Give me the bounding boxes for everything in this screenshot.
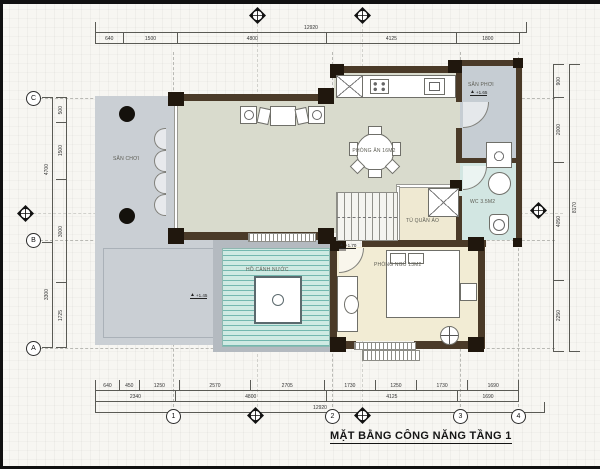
dim-segment: 2570 [179,380,250,391]
dim-value: 12920 [313,406,327,412]
bedroom-window [354,342,416,350]
living-window [248,233,316,242]
grid-bubble-2: 2 [325,409,340,424]
dim-chain-bottom-2: 2340480041251690 [95,391,519,401]
dim-segment: 4125 [326,391,457,402]
dim-value: 1730 [344,384,355,390]
dim-segment: 1800 [456,33,520,44]
wall-bedroom-left [330,247,337,341]
desk-chair [344,295,359,314]
wall-right [516,60,522,245]
dim-value: 2000 [557,124,562,135]
dim-value: 1500 [59,145,64,156]
column [513,58,523,68]
dim-value: 500 [59,106,64,114]
column [330,337,346,352]
dim-value: 4125 [386,395,397,401]
dim-segment: 2340 [95,391,175,402]
dim-value: 450 [125,384,133,390]
dim-segment: 1500 [56,122,67,180]
axis-marker-icon [354,407,371,424]
dim-segment: 1730 [416,380,468,391]
dim-segment: 2250 [553,280,564,352]
dim-segment: 2000 [553,97,564,162]
column [168,228,184,244]
dim-value: 1500 [145,37,156,43]
furniture-tv-unit [270,106,296,126]
dim-value: 4050 [557,216,562,227]
dim-value: 2705 [282,384,293,390]
dim-segment: 8170 [569,64,580,352]
dim-segment: 4125 [326,33,456,44]
dim-value: 1800 [482,37,493,43]
room-label-pond: HỒ CẢNH NƯỚC [246,267,289,273]
sink-icon [424,78,445,95]
dim-value: 4125 [386,37,397,43]
grid-bubble-4: 4 [511,409,526,424]
level-triangle-icon: ▲ [339,243,344,248]
dim-chain-bottom-1: 6404501250257027051730125017301690 [95,380,519,390]
dim-segment: 3000 [56,179,67,282]
dim-segment: 1725 [56,282,67,348]
dim-value: 640 [105,37,113,43]
dim-value: 1730 [437,384,448,390]
drawing-title: MẶT BẰNG CÔNG NĂNG TẦNG 1 [330,430,512,444]
dim-segment: 640 [95,380,119,391]
room-label-wc: WC 3.5M2 [470,199,495,205]
fan-symbol-icon [440,326,459,345]
grid-bubble-a: A [26,341,41,356]
toilet-icon [489,214,509,235]
dim-chain-top: 6401500480041251800 [95,33,520,43]
axis-marker-icon [17,205,34,222]
room-label-wardrobe: TỦ QUẦN ÁO [406,218,439,224]
dim-value: 1690 [482,395,493,401]
dining-chair [368,126,382,135]
level-triangle-icon: ▲ [190,293,195,298]
grid-bubble-c: C [26,91,41,106]
elevation-value: +1.45 [196,294,207,299]
fountain-drain-icon [272,294,284,306]
dim-value: 4700 [45,164,50,175]
dim-value: 3300 [45,289,50,300]
dim-segment: 12920 [95,22,527,33]
elevation-marker: ▲+1.45 [190,293,207,299]
axis-marker-icon [530,202,547,219]
page-border-top [0,0,600,4]
wall-kitchen-top [330,66,462,73]
column [448,60,462,73]
wall-living-top [172,94,334,101]
dim-segment: 1250 [375,380,416,391]
dim-segment: 1500 [123,33,178,44]
room-label-playground: SÂN CHƠI [113,156,139,162]
dim-segment: 1690 [457,391,519,402]
dim-value: 4800 [247,37,258,43]
tree-icon [119,106,135,122]
dim-value: 12920 [304,26,318,32]
dim-segment: 4050 [553,162,564,280]
grid-bubble-3: 3 [453,409,468,424]
dim-chain-right-outer: 8170 [569,64,579,352]
dim-value: 1250 [390,384,401,390]
dim-segment: 2705 [250,380,324,391]
elevation-value: +1.65 [476,91,487,96]
dim-value: 3000 [59,226,64,237]
washing-machine-icon [486,142,512,168]
elevation-marker: ▲+1.65 [470,90,487,96]
page-border-left [0,0,3,469]
dim-segment: 12920 [95,402,545,413]
room-label-dining: PHÒNG ĂN 16M2 [345,148,403,154]
dim-segment: 450 [119,380,139,391]
dim-chain-left-outer: 47003300 [42,97,52,348]
elevation-marker: ▲+1.70 [339,243,356,249]
column [468,237,484,251]
furniture-speaker-right [308,106,325,124]
column [513,238,522,247]
wall-bedroom-right [478,247,485,347]
dim-value: 1690 [488,384,499,390]
room-label-bedroom: PHÒNG NGỦ 13M2 [374,262,422,268]
stove-icon [370,79,389,94]
axis-marker-icon [354,7,371,24]
wc-basin-icon [488,172,511,195]
dim-value: 2570 [209,384,220,390]
dim-segment: 900 [553,64,564,97]
grid-bubble-1: 1 [166,409,181,424]
dim-segment: 3300 [42,242,53,348]
axis-marker-icon [249,7,266,24]
wardrobe-cabinet [428,188,459,217]
dim-segment: 1250 [139,380,180,391]
dim-segment: 1690 [467,380,519,391]
dim-segment: 1730 [324,380,376,391]
dim-chain-left-inner: 500150030001725 [56,97,66,348]
dim-segment: 4800 [177,33,326,44]
column [468,337,484,352]
wall-kitchen-drying-2 [456,128,462,160]
level-triangle-icon: ▲ [470,90,475,95]
dim-value: 8170 [573,202,578,213]
dim-value: 2250 [557,310,562,321]
column [318,88,334,104]
column [168,92,184,106]
wall-living-left-glass [174,104,178,234]
elevation-value: +1.70 [345,244,356,249]
dim-chain-right-inner: 900200040502250 [553,64,563,352]
room-label-drying-yard: SÂN PHƠI [468,82,494,88]
furniture-speaker-left [240,106,257,124]
grid-bubble-b: B [26,233,41,248]
entry-steps [362,350,420,361]
dim-value: 900 [557,77,562,85]
dim-segment: 500 [56,97,67,122]
kitchen-cabinet [336,75,363,98]
nightstand [460,283,477,301]
dim-segment: 4700 [42,97,53,242]
dim-chain-bottom-overall: 12920 [95,402,545,412]
dim-value: 1725 [59,310,64,321]
axis-marker-icon [247,407,264,424]
dining-chair [368,169,382,178]
dim-value: 1250 [154,384,165,390]
dim-segment: 4800 [175,391,326,402]
dim-value: 640 [103,384,111,390]
dim-chain-top-overall: 12920 [95,22,527,32]
pond-fountain [254,276,302,324]
staircase [336,192,398,241]
dim-value: 2340 [130,395,141,401]
floor-plan-sheet: SÂN CHƠI PHÒNG ĂN 16M2 SÂN PHƠI WC 3.5M2… [0,0,600,469]
tree-icon [119,208,135,224]
dim-segment: 640 [95,33,123,44]
dim-value: 4800 [245,395,256,401]
